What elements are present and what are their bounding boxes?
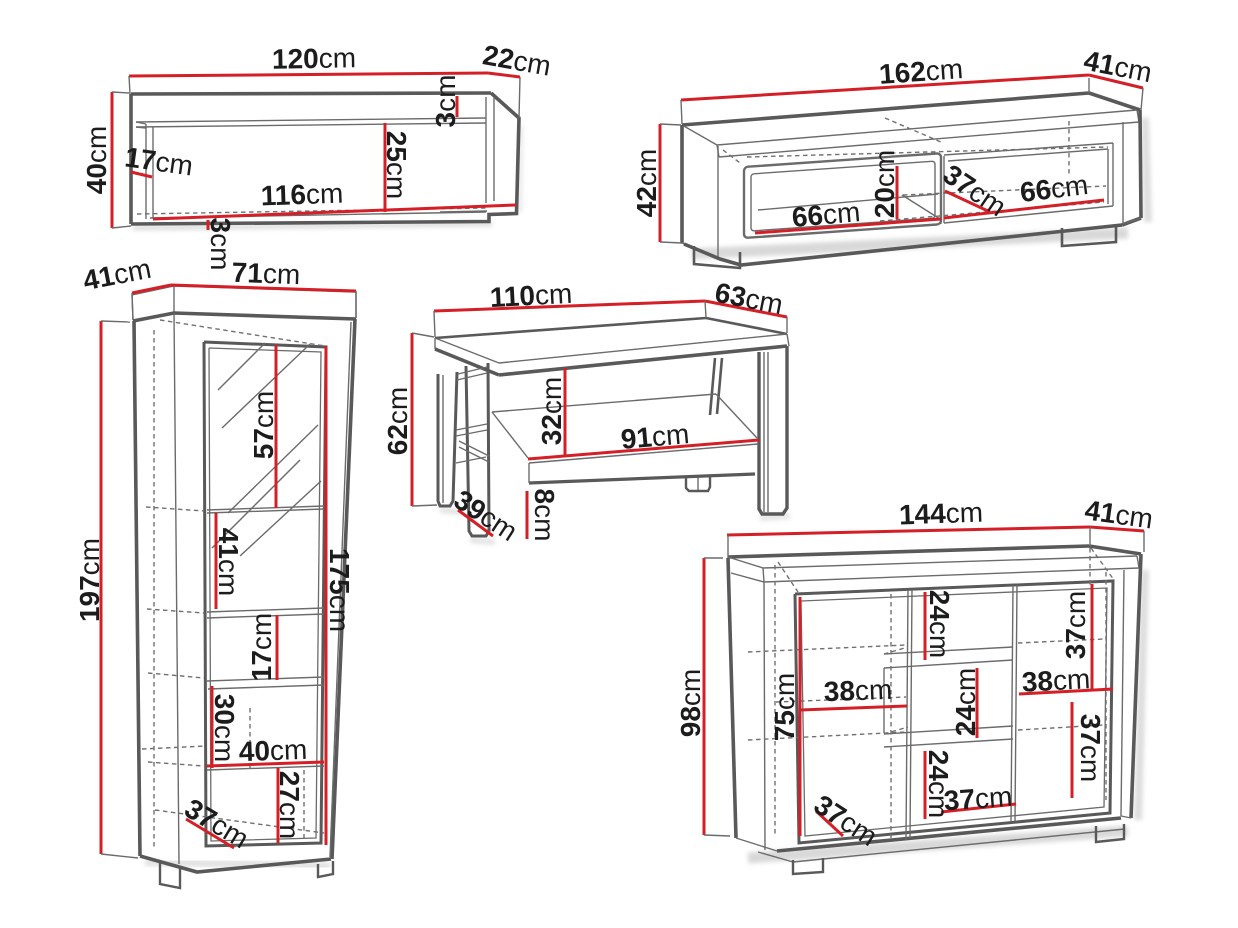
- svg-text:197cm: 197cm: [74, 538, 105, 622]
- svg-text:66cm: 66cm: [791, 196, 862, 233]
- svg-text:37cm: 37cm: [1060, 591, 1091, 659]
- svg-text:41cm: 41cm: [214, 528, 245, 596]
- svg-text:40cm: 40cm: [81, 126, 112, 194]
- svg-text:162cm: 162cm: [878, 53, 964, 90]
- svg-text:110cm: 110cm: [489, 277, 573, 312]
- svg-text:91cm: 91cm: [620, 418, 691, 455]
- svg-text:20cm: 20cm: [869, 150, 900, 218]
- svg-text:116cm: 116cm: [260, 177, 344, 211]
- svg-text:175cm: 175cm: [325, 548, 356, 632]
- svg-text:27cm: 27cm: [275, 771, 306, 839]
- svg-text:120cm: 120cm: [272, 42, 357, 74]
- svg-text:40cm: 40cm: [238, 733, 308, 766]
- svg-text:62cm: 62cm: [382, 387, 413, 455]
- svg-text:30cm: 30cm: [210, 694, 241, 762]
- svg-text:24cm: 24cm: [950, 668, 981, 736]
- svg-text:98cm: 98cm: [675, 669, 706, 737]
- svg-text:75cm: 75cm: [769, 673, 800, 741]
- svg-text:37cm: 37cm: [943, 780, 1013, 816]
- svg-text:8cm: 8cm: [530, 489, 561, 542]
- svg-text:38cm: 38cm: [823, 673, 893, 706]
- svg-text:3cm: 3cm: [430, 75, 461, 128]
- svg-text:24cm: 24cm: [925, 590, 956, 658]
- svg-text:17cm: 17cm: [246, 613, 277, 681]
- svg-text:57cm: 57cm: [248, 391, 279, 459]
- svg-text:25cm: 25cm: [382, 131, 413, 199]
- svg-text:71cm: 71cm: [231, 256, 301, 289]
- svg-text:32cm: 32cm: [536, 377, 567, 445]
- svg-text:37cm: 37cm: [1076, 714, 1107, 782]
- svg-text:42cm: 42cm: [631, 149, 662, 217]
- svg-text:144cm: 144cm: [898, 496, 983, 530]
- svg-text:38cm: 38cm: [1021, 663, 1091, 698]
